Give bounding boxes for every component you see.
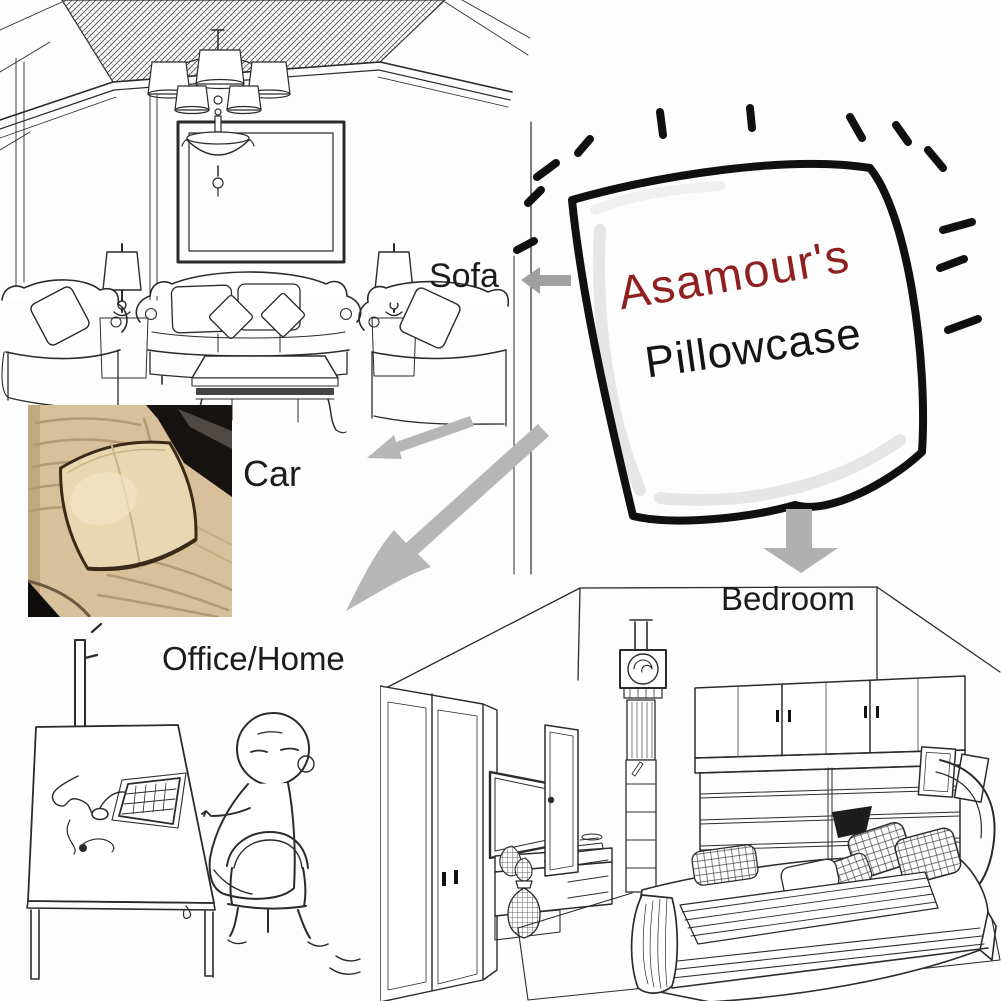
car-seat-photo xyxy=(28,405,232,617)
product-usage-diagram: Sofa Car Office/Home Bedroom Asamour's P… xyxy=(0,0,1001,1001)
bedroom-illustration xyxy=(380,560,1001,1001)
pillowcase-illustration xyxy=(500,90,1001,550)
door xyxy=(545,725,578,876)
armchair-left xyxy=(2,280,127,418)
person-at-desk xyxy=(202,713,314,899)
monitor-motion-dashes xyxy=(85,624,101,658)
car-label: Car xyxy=(243,456,301,492)
bed-skirt xyxy=(632,895,678,993)
armchair-right xyxy=(359,282,508,426)
slatted-column xyxy=(626,700,656,892)
ceiling-fan-unit xyxy=(620,620,666,698)
wardrobe-left xyxy=(380,686,497,1001)
wall-frames xyxy=(918,747,988,802)
mouse xyxy=(92,809,108,820)
room-lines xyxy=(382,587,1000,690)
sofa-label: Sofa xyxy=(429,259,499,293)
ground-squiggles xyxy=(228,940,360,974)
bedroom-label: Bedroom xyxy=(721,582,855,615)
office-label: Office/Home xyxy=(162,642,345,675)
